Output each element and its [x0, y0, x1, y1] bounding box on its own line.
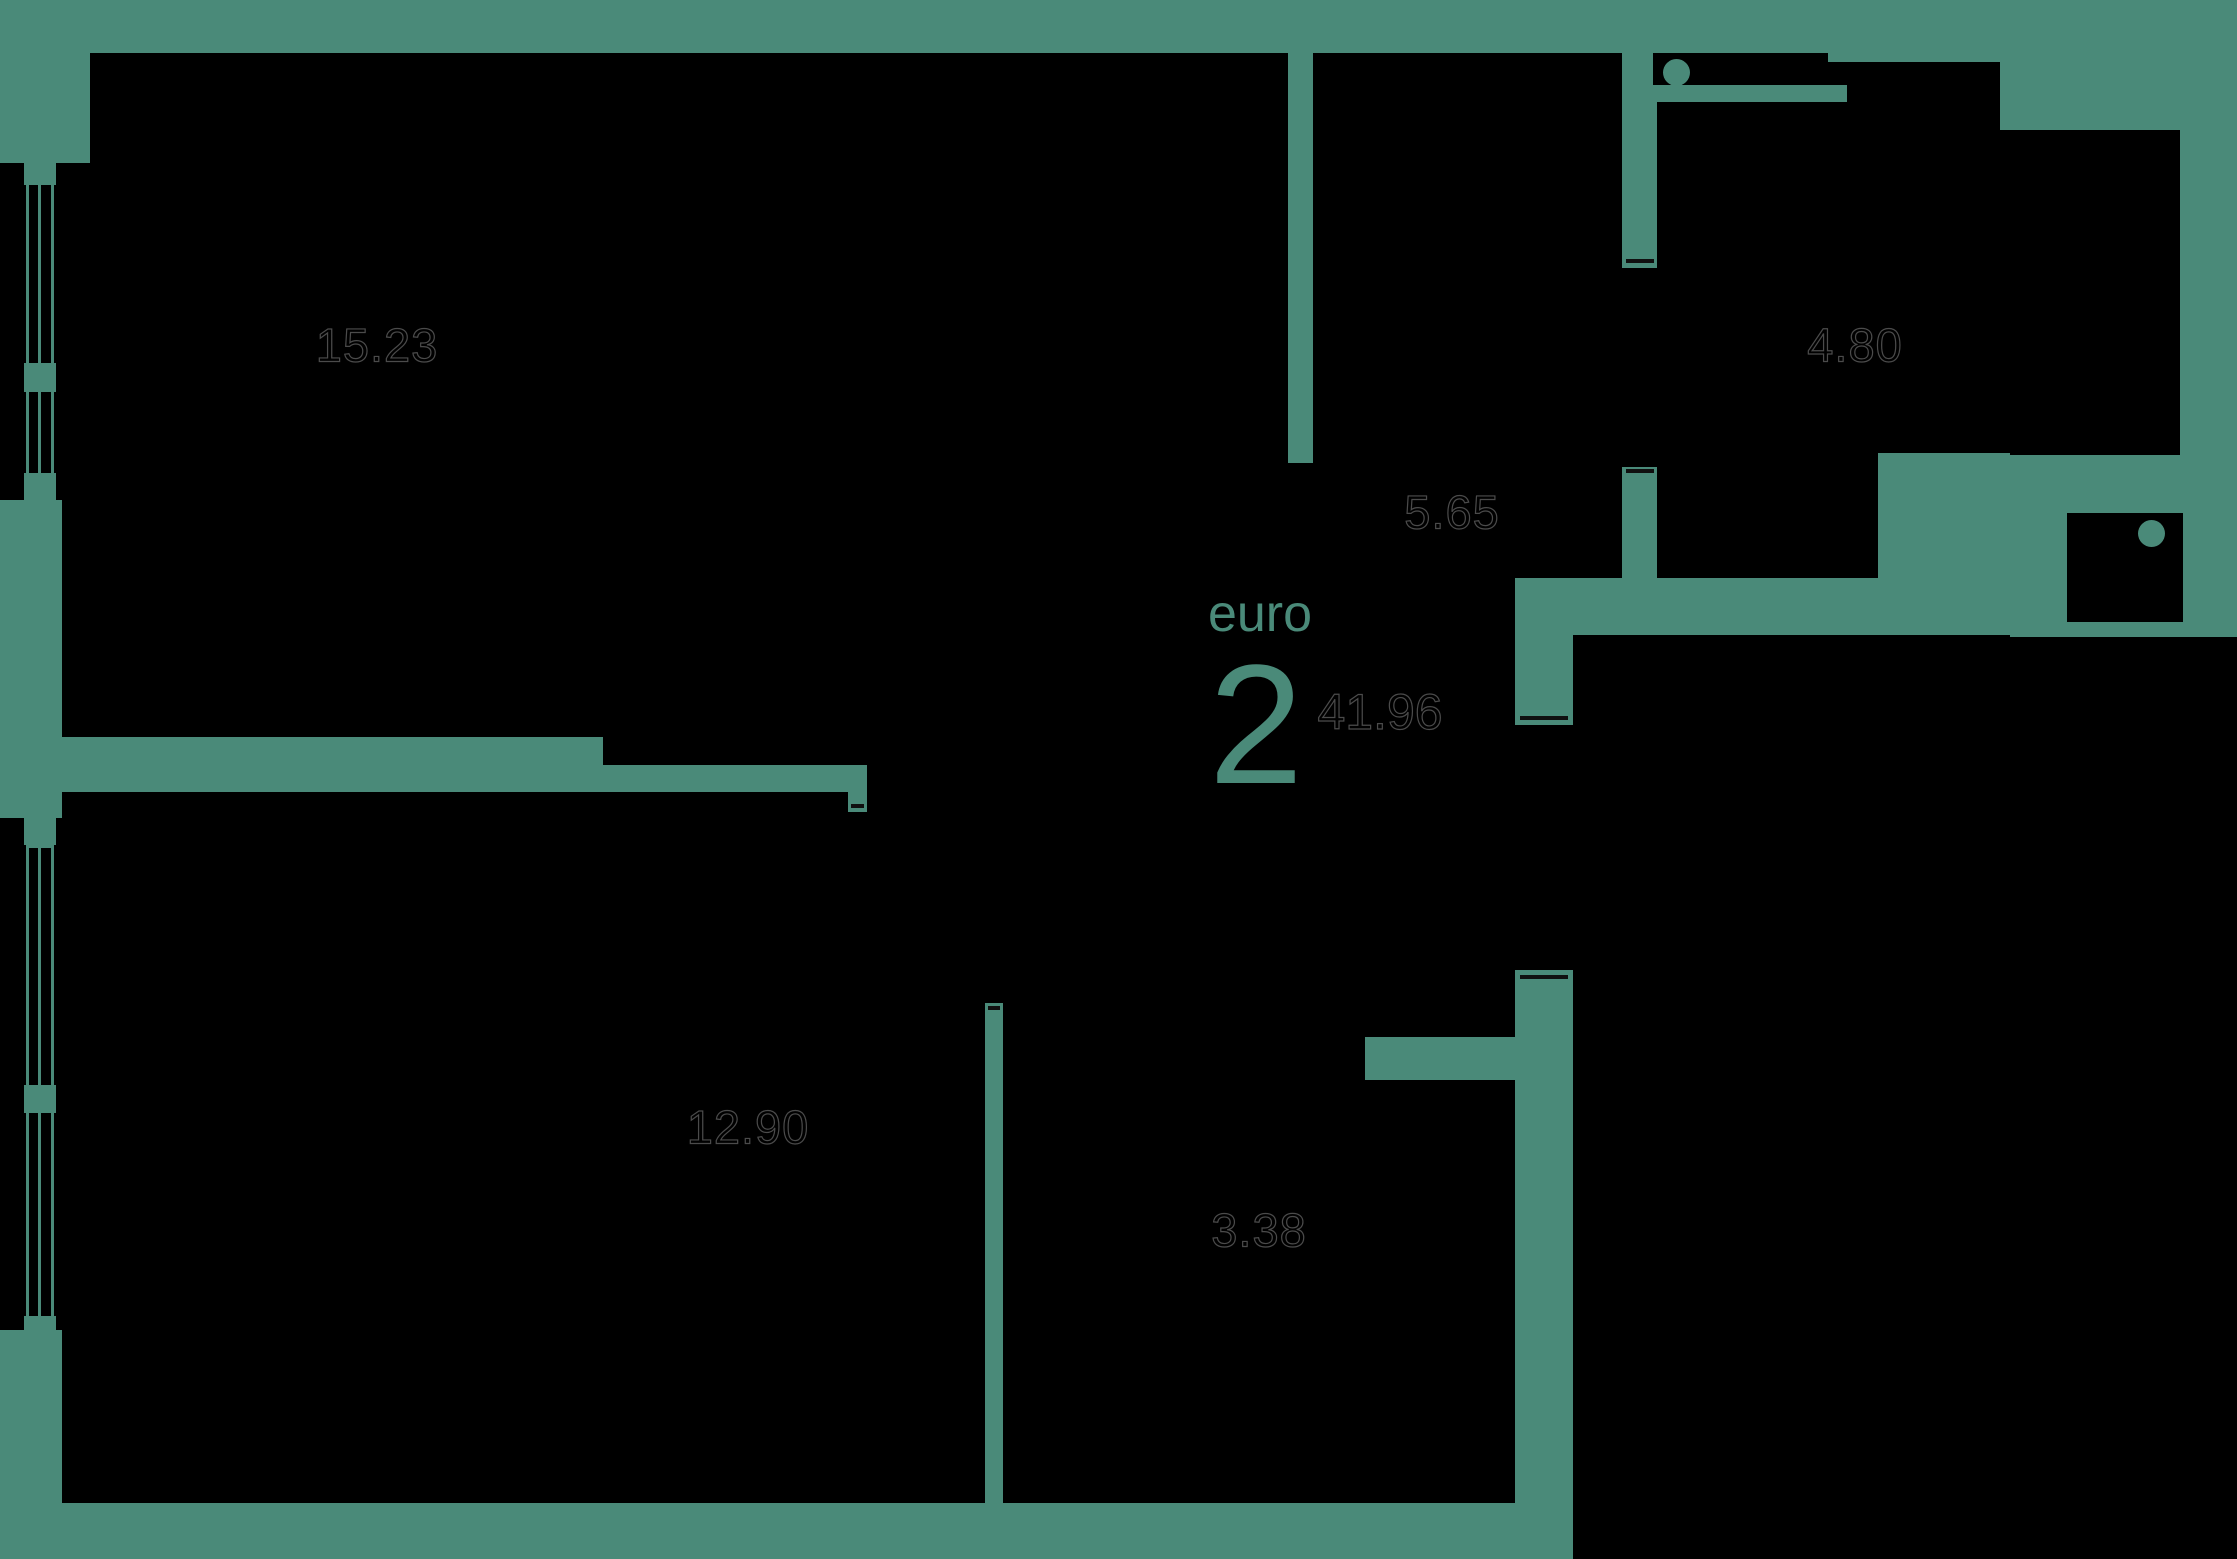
wall-bottom-bar — [0, 1503, 1573, 1559]
window-bedroom-glass-line — [38, 848, 41, 1319]
wall-top-bar — [0, 0, 2237, 53]
floor-plan: 15.23 5.65 4.80 12.90 3.38 euro 2 41.96 — [0, 0, 2237, 1559]
room-label-bedroom: 12.90 — [687, 1100, 810, 1155]
vent-shaft-right — [2067, 513, 2183, 622]
wall-shaft-right — [2183, 513, 2237, 637]
window-living-room-top-sill — [24, 163, 56, 185]
wall-top-lip — [1828, 53, 2237, 62]
room-label-bathroom: 3.38 — [1211, 1203, 1306, 1258]
window-bedroom-top-sill — [24, 818, 56, 845]
wall-bedroom-bathroom — [985, 1003, 1003, 1503]
vent-shaft-right-icon — [2138, 520, 2165, 547]
plan-total-area: 41.96 — [1317, 683, 1442, 741]
wall-right-border — [2180, 130, 2237, 457]
door-cap-column-upper — [1520, 716, 1568, 720]
wall-livingroom-bedroom-right — [603, 765, 848, 792]
door-cap-corridor-lower — [1626, 469, 1654, 473]
window-living-room-bottom-sill — [24, 473, 56, 500]
door-cap-bathroom-wall — [988, 1006, 1000, 1010]
wall-livingroom-bedroom-left — [62, 737, 603, 792]
wall-corridor-left — [1288, 52, 1313, 463]
wall-corridor-right-lower — [1622, 467, 1657, 580]
wall-bath-block — [1878, 453, 2010, 635]
wall-hall-bottom — [1365, 1037, 1515, 1080]
room-label-living-room: 15.23 — [316, 318, 439, 373]
door-cap-bedroom — [851, 804, 864, 808]
wall-step-band — [2010, 455, 2237, 513]
door-cap-corridor-upper — [1626, 259, 1654, 263]
wall-shaft-left — [2010, 513, 2067, 637]
plan-rooms-count: 2 — [1209, 627, 1304, 823]
wall-top-left-corner — [0, 0, 90, 163]
window-living-room-mid-sill — [24, 363, 56, 392]
wall-corridor-right-upper — [1622, 53, 1657, 268]
room-label-hallway: 5.65 — [1404, 485, 1499, 540]
wall-right-column-upper — [1515, 578, 1573, 725]
door-cap-column-lower — [1520, 975, 1568, 979]
wall-top-right-corner — [2000, 0, 2237, 130]
wall-vent-strip — [1653, 85, 1847, 102]
window-bedroom-mid-sill — [24, 1085, 56, 1113]
window-bedroom-bottom-sill — [24, 1316, 56, 1342]
wall-left-middle — [0, 500, 62, 818]
wall-right-column-lower — [1515, 970, 1573, 1559]
window-living-room-glass-line — [38, 166, 41, 497]
room-label-kitchen: 4.80 — [1807, 318, 1902, 373]
vent-shaft-top-icon — [1663, 59, 1690, 86]
